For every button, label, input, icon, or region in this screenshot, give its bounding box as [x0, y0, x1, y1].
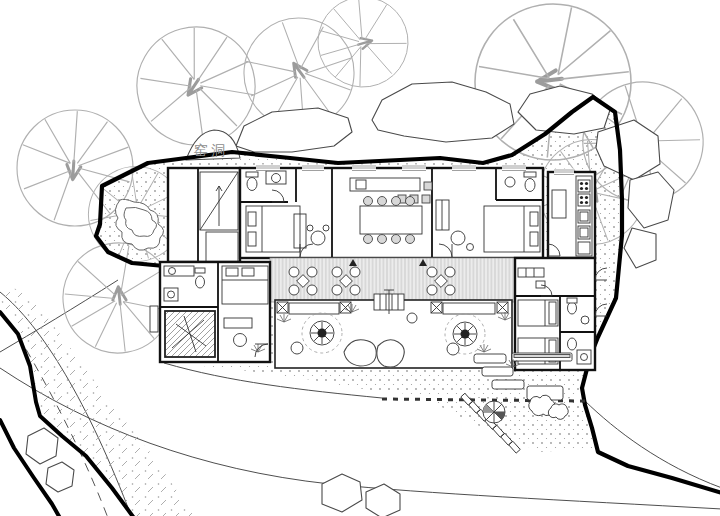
dining-room [350, 178, 432, 244]
stepping-stone [492, 380, 524, 389]
river-rock [26, 428, 58, 464]
cabinet [552, 190, 566, 218]
toilet-icon [568, 338, 577, 350]
stool [407, 313, 417, 323]
sink-icon [581, 316, 589, 324]
table [451, 231, 465, 245]
area-label: 窑洞 [194, 142, 228, 158]
stove-icon [578, 180, 590, 192]
dining-table [360, 206, 422, 234]
wardrobe [436, 200, 449, 230]
stepping-stone [482, 367, 513, 376]
planter-bench [443, 303, 495, 314]
sink-icon [505, 177, 515, 187]
stool [447, 343, 459, 355]
courtyard-steps [374, 290, 404, 314]
river-rock [46, 462, 74, 492]
river-rock [366, 484, 400, 516]
stair-block [168, 168, 240, 262]
stove-icon [578, 194, 590, 206]
tree-icon [305, 0, 420, 100]
toilet-icon [247, 178, 257, 191]
toilet-icon [196, 276, 205, 288]
shower [577, 350, 591, 364]
stool [234, 334, 247, 347]
stool [291, 342, 303, 354]
shower [164, 288, 178, 301]
courtyard-rock [377, 340, 404, 367]
table [311, 231, 325, 245]
stepping-stone [474, 354, 506, 363]
river-rock [322, 474, 362, 512]
planter-bench [289, 303, 339, 314]
building-plan [150, 165, 607, 371]
kitchen-block [548, 169, 595, 259]
bench [518, 268, 544, 277]
outdoor-bench [150, 306, 158, 332]
site-plan-drawing: 窑洞 [0, 0, 720, 516]
west-suite [150, 262, 270, 362]
upper-rooms [240, 165, 543, 259]
desk [224, 318, 252, 328]
toilet-icon [568, 302, 577, 314]
small-tree-icon [483, 401, 505, 423]
floor-plan-canvas: 窑洞 [0, 0, 720, 516]
toilet-icon [525, 179, 535, 192]
